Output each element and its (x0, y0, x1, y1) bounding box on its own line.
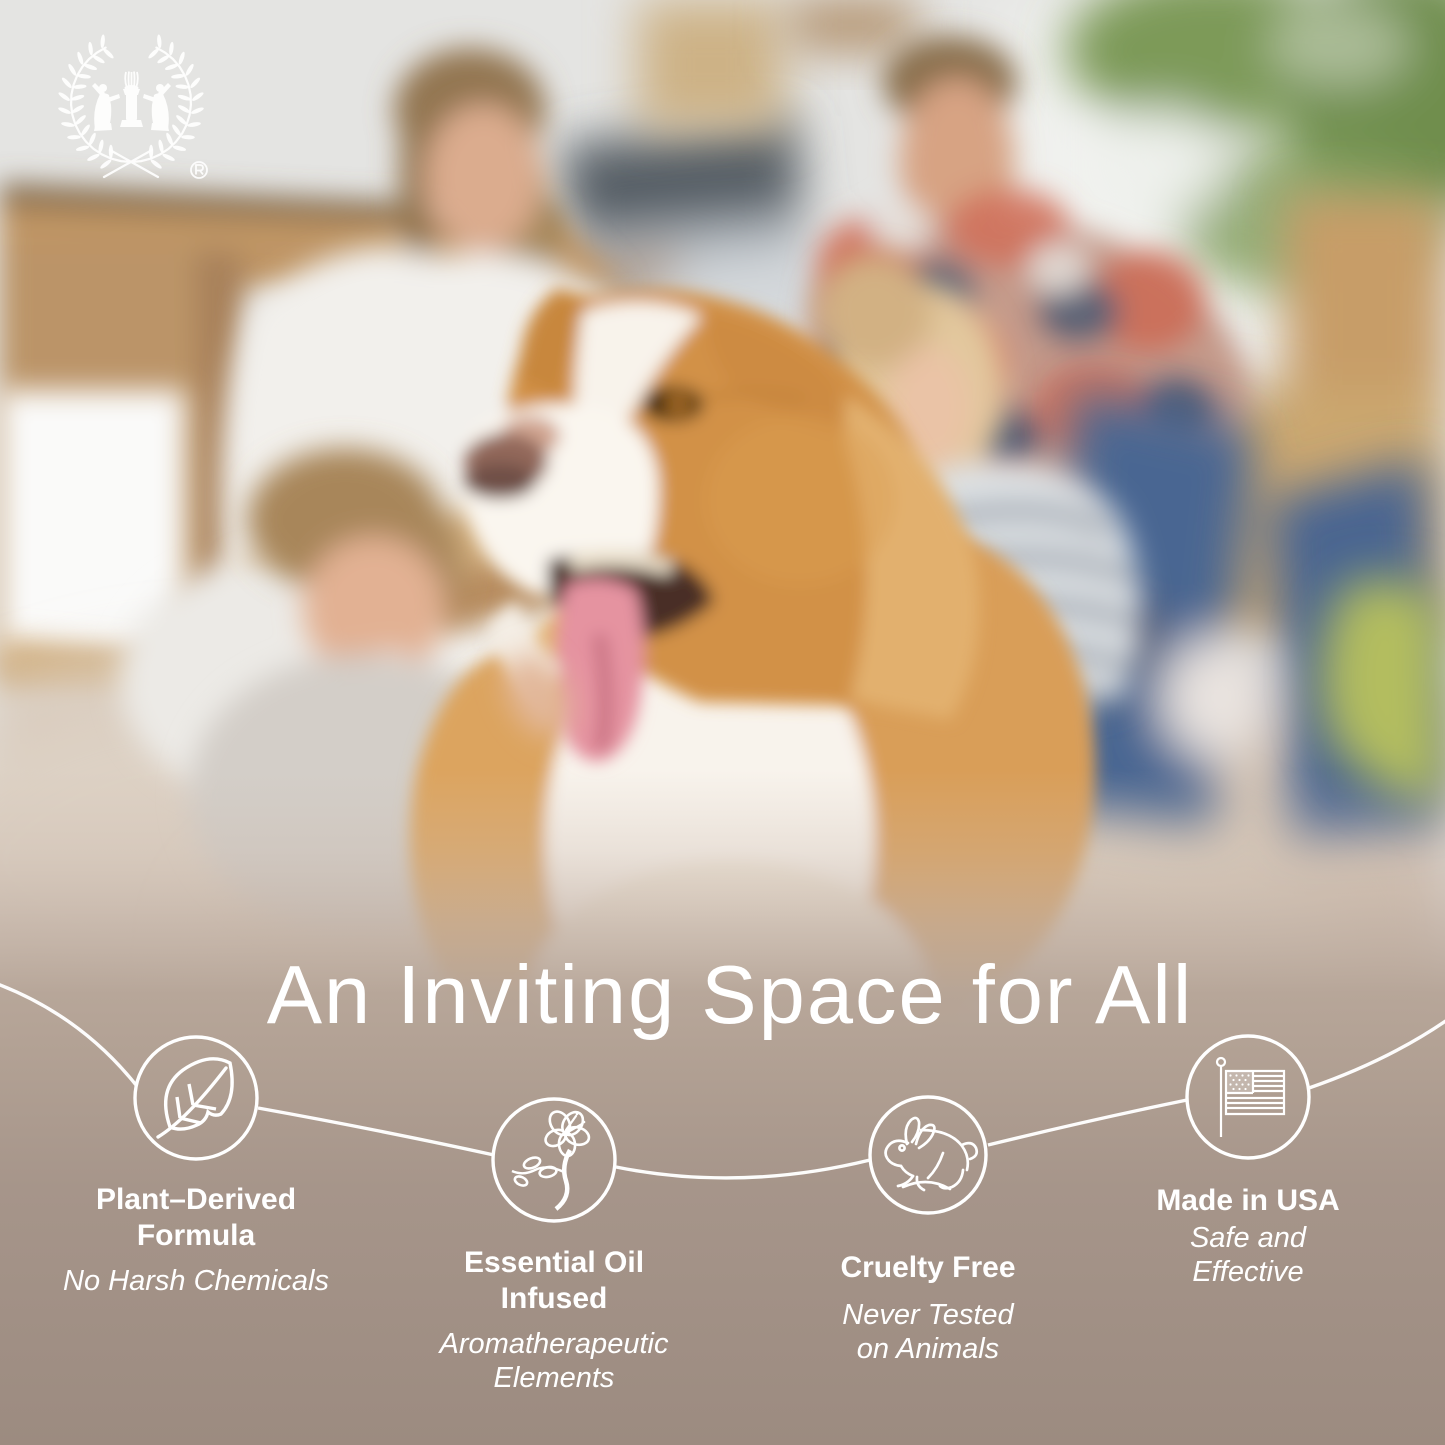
svg-text:Effective: Effective (1192, 1256, 1303, 1288)
svg-text:Essential Oil: Essential Oil (464, 1246, 644, 1279)
svg-text:Cruelty Free: Cruelty Free (840, 1251, 1015, 1284)
svg-text:Elements: Elements (494, 1362, 615, 1394)
svg-text:An Inviting Space for All: An Inviting Space for All (267, 948, 1194, 1041)
svg-text:Infused: Infused (501, 1282, 608, 1315)
svg-text:Never Tested: Never Tested (842, 1299, 1014, 1331)
svg-text:Plant–Derived: Plant–Derived (96, 1183, 296, 1216)
svg-text:on Animals: on Animals (857, 1333, 999, 1365)
svg-text:No Harsh Chemicals: No Harsh Chemicals (63, 1265, 329, 1297)
svg-text:Formula: Formula (137, 1219, 256, 1252)
svg-text:Safe and: Safe and (1190, 1222, 1307, 1254)
svg-text:Aromatherapeutic: Aromatherapeutic (438, 1328, 669, 1360)
svg-text:Made in USA: Made in USA (1156, 1184, 1339, 1217)
